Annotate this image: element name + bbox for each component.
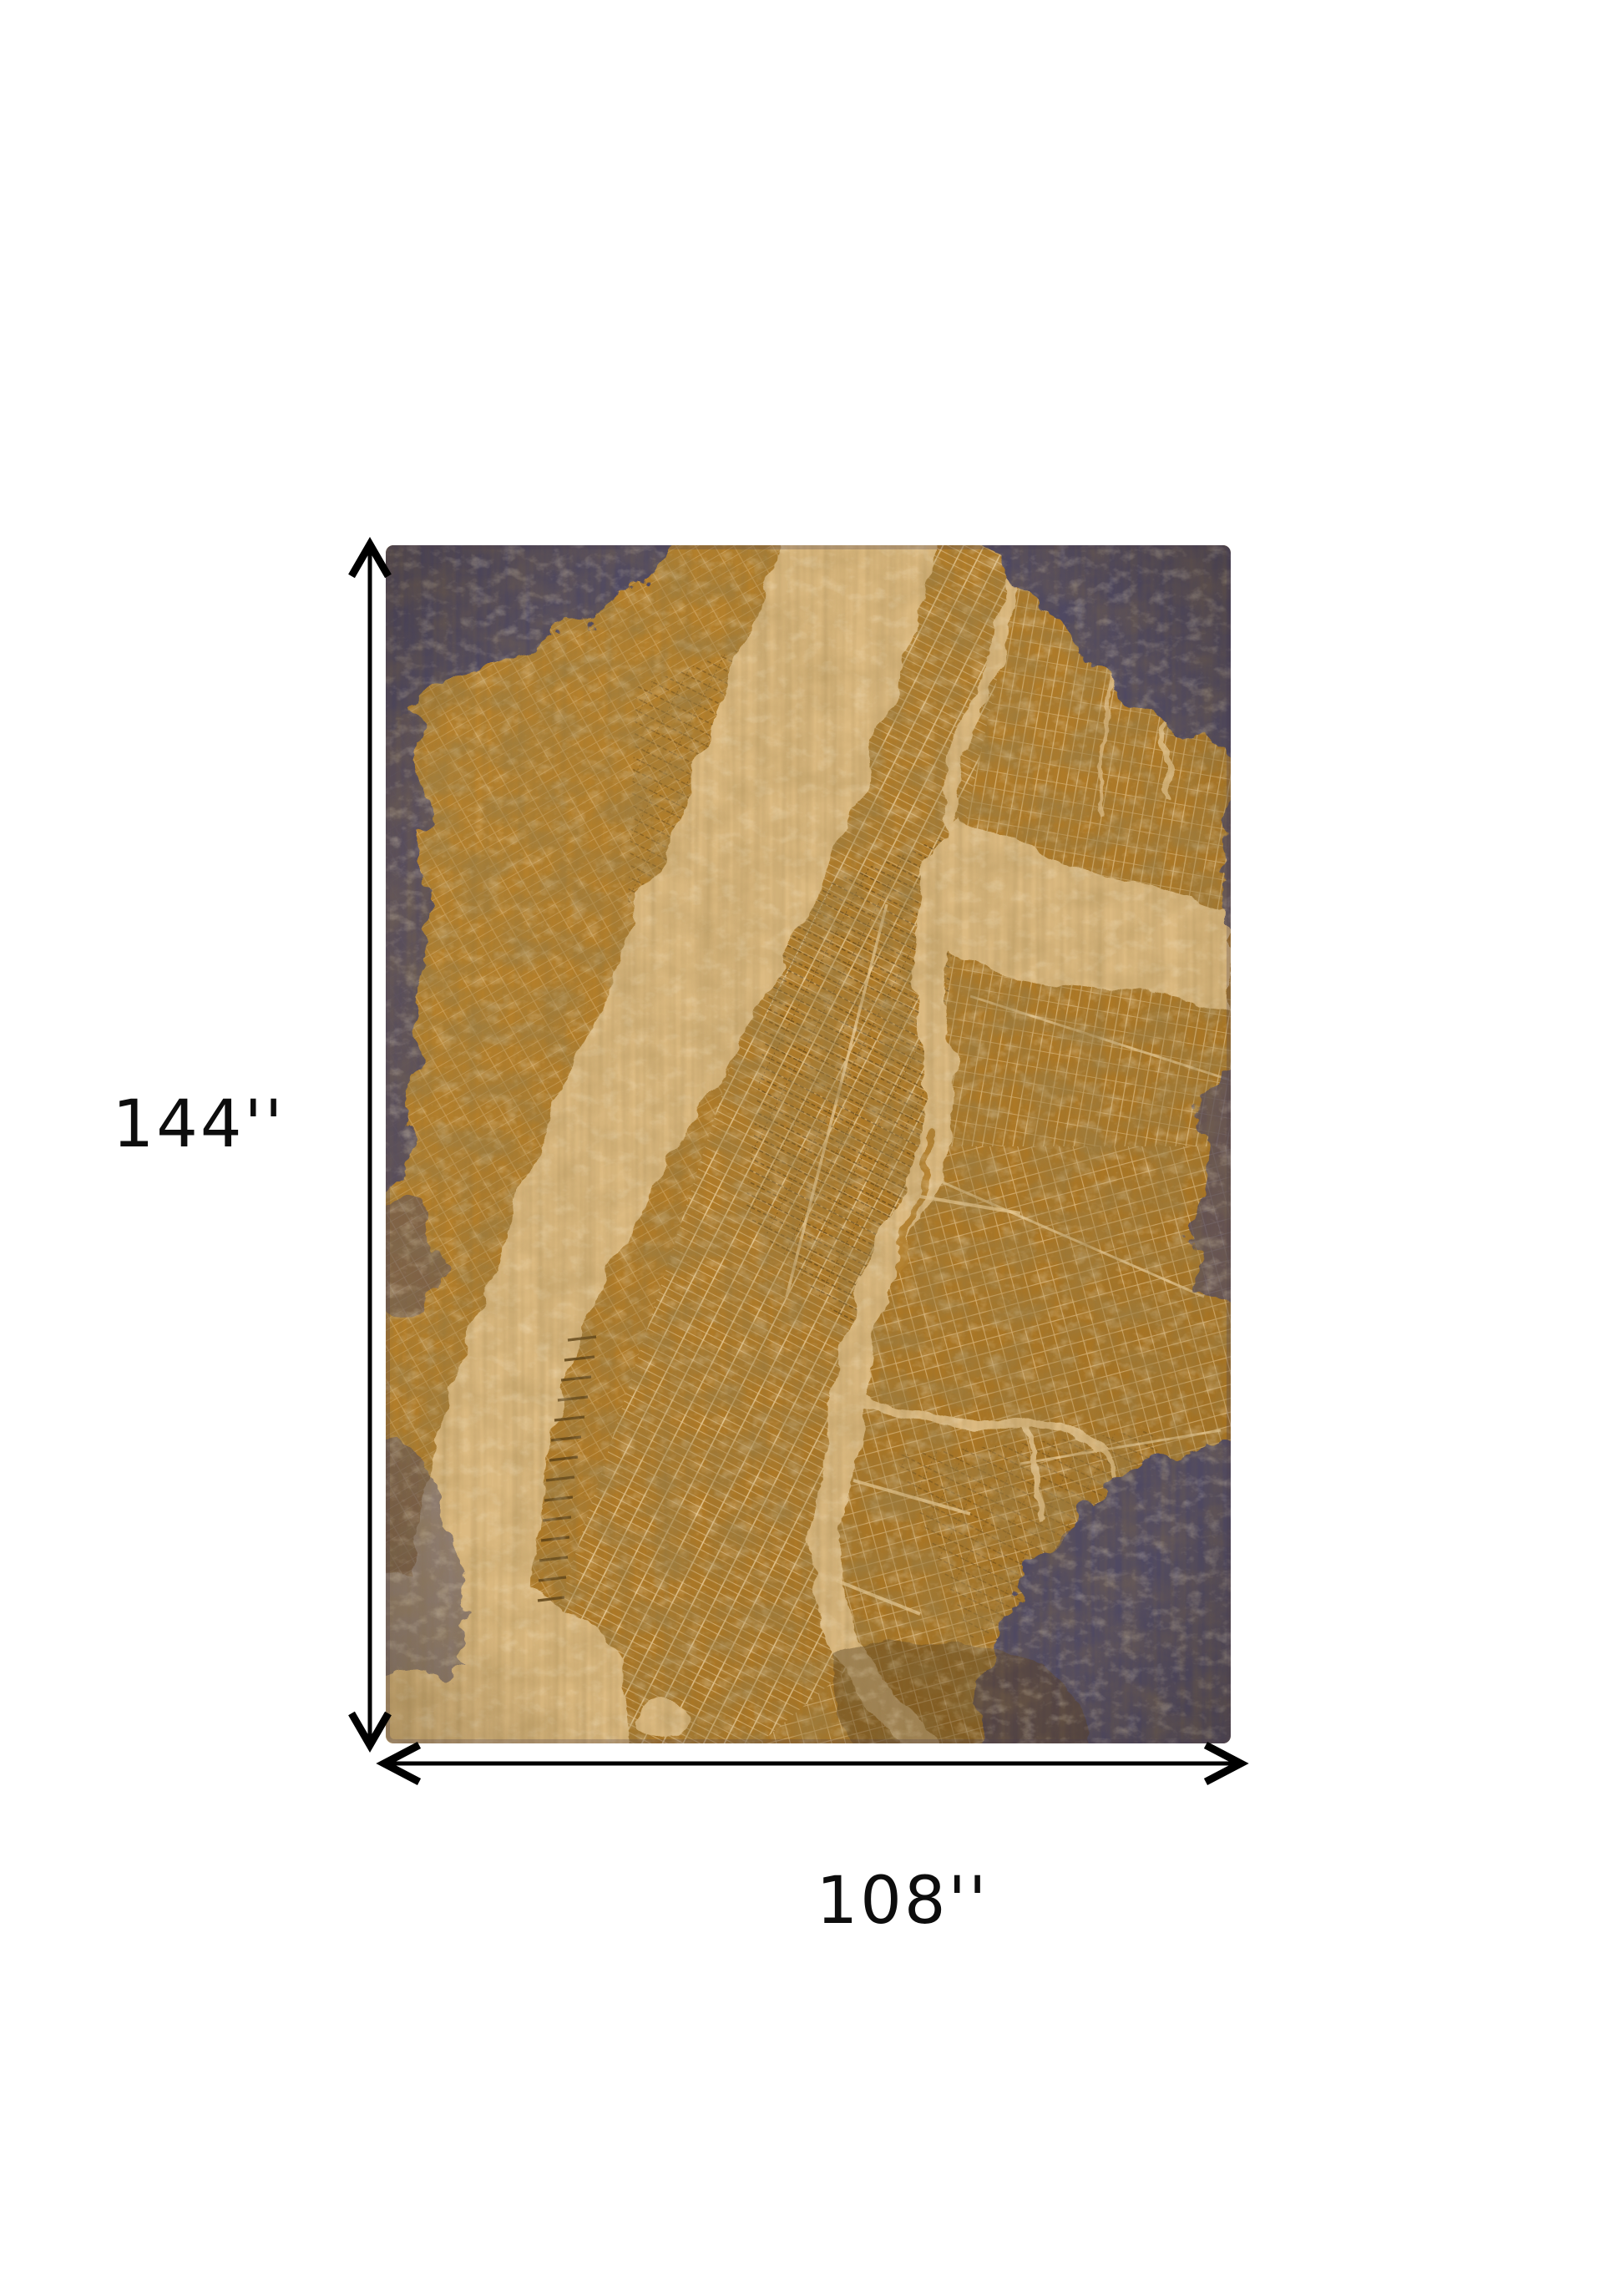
height-dimension-label: 144'' [73, 1087, 324, 1162]
horizontal-dimension-arrow [384, 1745, 1241, 1782]
rug-map-art [386, 545, 1231, 1743]
texture-layer [386, 545, 1231, 1743]
width-dimension-label: 108'' [777, 1864, 1028, 1939]
vertical-dimension-arrow [352, 544, 388, 1745]
product-dimension-diagram: 144'' 108'' [0, 0, 1624, 2292]
rug-image [386, 545, 1231, 1743]
